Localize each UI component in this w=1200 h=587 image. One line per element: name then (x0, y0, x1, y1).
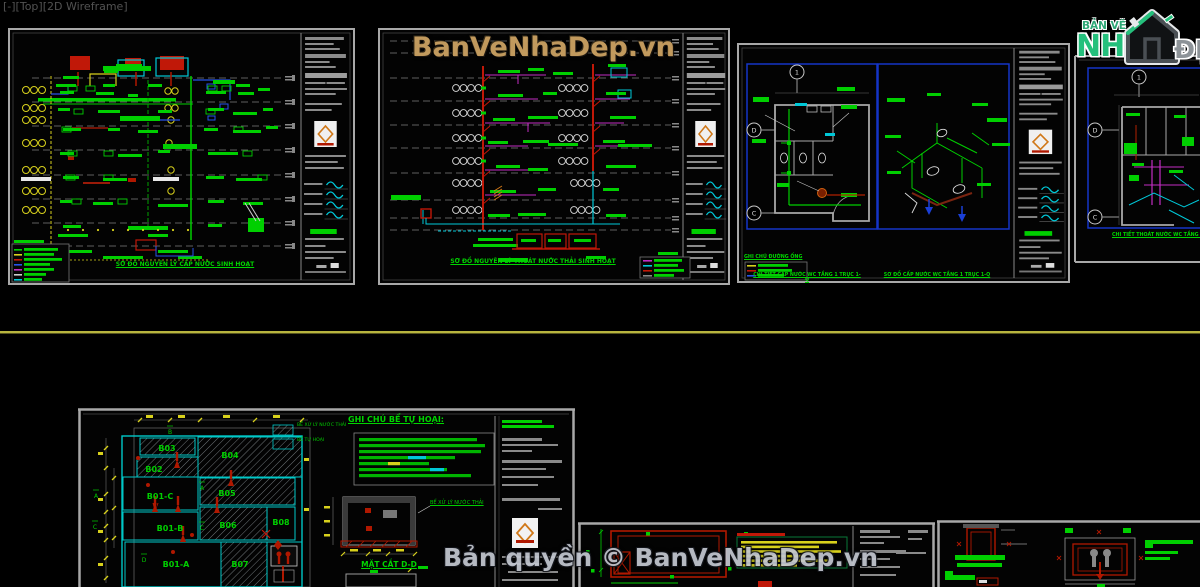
sheet-wc-supply-drawing: 1 D C (737, 43, 1070, 283)
sheet1-title: SƠ ĐỒ NGUYÊN LÝ CẤP NƯỚC SINH HOẠT (100, 262, 270, 269)
cad-viewport: [-][Top][2D Wireframe] (0, 0, 1200, 587)
septic-tank-callout: BỂ XỬ LÝ NƯỚC THẢI (430, 500, 484, 506)
room-label-b05: B05 (218, 489, 236, 498)
wc-fixtures (781, 106, 832, 163)
fixture-circle-clusters (453, 85, 600, 214)
grid-letter-c2: C (200, 525, 204, 532)
sheet-tank-detail-right (937, 520, 1200, 587)
brand-logo: BẢN VẼ NH ĐẸP (1068, 3, 1200, 81)
room-label-b01a: B01-A (163, 560, 191, 569)
brand-name-suffix: ĐẸP (1174, 35, 1200, 64)
labels-right (1145, 540, 1193, 560)
cover-detail-middle (1057, 528, 1143, 587)
sheet-wc-drain-drawing: 1 D C (1074, 55, 1200, 263)
grid-bubble-c: C (1093, 214, 1098, 222)
grid-bubble-d: D (751, 127, 756, 135)
sheet-riser-waste-drawing (378, 28, 730, 285)
sheet-wc-drain-detail: 1 D C (1074, 55, 1200, 263)
wc-pipes (1124, 113, 1199, 223)
sheet-riser-waste (378, 28, 730, 285)
tank-plan: B03 B04 B02 B01-C B05 B06 B08 B01-B B01-… (92, 415, 310, 587)
grid-letter-c: C (93, 524, 97, 531)
sheet3-right-title: SƠ ĐỒ CẤP NƯỚC WC TẦNG 1 TRỤC 1-Q (882, 273, 992, 278)
room-label-b01b: B01-B (157, 524, 184, 533)
notes-box (354, 433, 494, 485)
room-label-b02: B02 (145, 465, 162, 474)
floor-markers (285, 75, 295, 249)
floor-markers (672, 39, 679, 233)
room-label-b03: B03 (158, 444, 175, 453)
section-detail (324, 497, 430, 587)
fixture-labels (391, 64, 652, 262)
grid-letter-d: D (142, 557, 147, 564)
sheet4-title: CHI TIẾT THOÁT NƯỚC WC TẦNG 1 TRỤC 1-Q (1112, 233, 1200, 238)
sheet2-title: SƠ ĐỒ NGUYÊN LÝ THOÁT NƯỚC THẢI SINH HOẠ… (448, 259, 618, 266)
sheet3-legend-title: GHI CHÚ ĐƯỜNG ỐNG (744, 255, 804, 260)
watermark-top: BanVeNhaDep.vn (412, 32, 675, 63)
room-label-b06: B06 (219, 521, 237, 530)
sheet3-left-title: CHI TIẾT CẤP NƯỚC WC TẦNG 1 TRỤC 1-Q (752, 273, 862, 284)
risers (483, 64, 600, 230)
sheet-riser-supply-drawing (8, 28, 355, 285)
grid-letter-b: B (168, 429, 172, 436)
viewport-label: [-][Top][2D Wireframe] (3, 0, 128, 13)
pump-pit (271, 546, 297, 582)
room-label-b08: B08 (272, 518, 290, 527)
grid-bubble-d: D (1092, 127, 1097, 135)
cover-detail-left (945, 524, 1027, 585)
septic-legend-plain-label: BỂ TỰ HOẠI (297, 438, 324, 443)
room-label-b04: B04 (221, 451, 239, 460)
room-label-b01c: B01-C (147, 492, 174, 501)
septic-notes-title: GHI CHÚ BỂ TỰ HOẠI: (348, 416, 478, 425)
fixture-labels (56, 64, 278, 259)
floor-lines (32, 78, 284, 246)
septic-section-title: MẶT CẮT D-D (354, 561, 424, 569)
septic-legend-hatched-label: BỂ XỬ LÝ NƯỚC THẢI (297, 423, 346, 428)
layout-separator-line (0, 331, 1200, 334)
sheet-riser-supply (8, 28, 355, 285)
brand-name-prefix: NH (1076, 29, 1124, 64)
room-label-b07: B07 (231, 560, 248, 569)
tank-detail-right-drawing (937, 520, 1200, 587)
grid-bubble-1: 1 (795, 69, 799, 77)
grid-bubble-c: C (752, 210, 757, 218)
sheet-wc-supply-detail: 1 D C (737, 43, 1070, 283)
isometric-diagram (885, 93, 1010, 222)
basement-tanks (421, 209, 600, 249)
legend-box (12, 240, 69, 282)
watermark-bottom: Bản quyền © BanVeNhaDep.vn (443, 543, 878, 572)
